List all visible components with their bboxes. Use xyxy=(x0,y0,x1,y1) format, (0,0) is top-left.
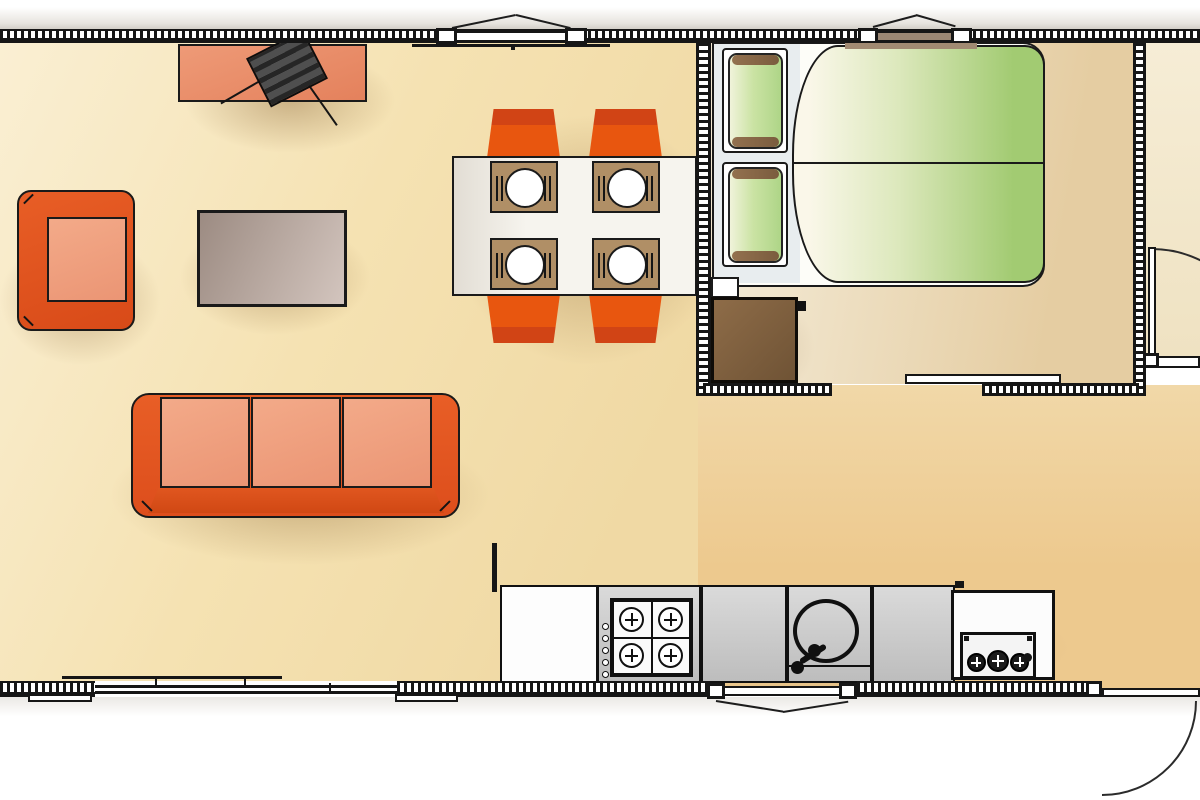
cutlery-icon xyxy=(544,253,552,278)
place-setting xyxy=(490,238,558,290)
window-frame xyxy=(565,28,587,44)
armchair-cushion xyxy=(47,217,127,302)
pillow xyxy=(728,167,783,263)
dining-chair xyxy=(487,294,560,343)
bed-corner-step xyxy=(711,277,739,298)
patio-slider-track xyxy=(95,685,397,688)
window-frame xyxy=(436,28,457,44)
coffee-table xyxy=(197,210,347,307)
stove-knob-icon xyxy=(602,623,609,630)
stove-knob-icon xyxy=(602,647,609,654)
plate-icon xyxy=(505,168,545,208)
cutlery-icon xyxy=(544,176,552,201)
appliance-cabinet xyxy=(951,590,1055,680)
window-frame xyxy=(951,28,972,44)
worktop-right xyxy=(872,585,955,683)
appliance-unit xyxy=(960,632,1036,679)
dining-chair xyxy=(487,109,560,158)
window-frame xyxy=(858,28,878,44)
nightstand xyxy=(711,297,798,383)
entry-door-jamb xyxy=(1086,681,1102,697)
appliance-dial-icon xyxy=(987,650,1009,672)
appliance-dial-icon xyxy=(967,653,986,672)
cutlery-icon xyxy=(598,176,606,201)
place-setting xyxy=(490,161,558,213)
kitchen-cabinet xyxy=(500,585,598,683)
patio-slider-track xyxy=(95,691,397,694)
exterior-wall-bottom-right xyxy=(857,681,1090,697)
bedroom-wall-left xyxy=(696,43,711,396)
entry-door-leaf xyxy=(1102,688,1200,697)
patio-slider-tick xyxy=(244,678,246,686)
sofa-cushion xyxy=(251,397,341,488)
window-sill-dot xyxy=(511,44,515,50)
sofa-front-edge xyxy=(148,488,444,513)
cutlery-icon xyxy=(496,253,504,278)
bathroom-door-leaf xyxy=(1148,247,1156,358)
patio-slider-tick xyxy=(155,678,157,686)
sofa-cushion xyxy=(160,397,250,488)
plate-icon xyxy=(607,168,647,208)
duvet-top xyxy=(792,45,1045,164)
plate-icon xyxy=(505,245,545,285)
bathroom-door-hinge xyxy=(1143,353,1159,368)
cutlery-icon xyxy=(646,176,654,201)
stove-knob-icon xyxy=(602,635,609,642)
bedroom-wall-right xyxy=(1133,43,1146,396)
exterior-shadow-bottom xyxy=(0,697,1200,723)
plate-icon xyxy=(607,245,647,285)
pillow xyxy=(728,53,783,149)
floor-plan xyxy=(0,0,1200,800)
place-setting xyxy=(592,238,660,290)
burner-icon xyxy=(658,607,683,632)
appliance-handle-icon xyxy=(955,581,964,588)
sofa-cushion xyxy=(342,397,432,488)
appliance-corner xyxy=(964,636,969,641)
worktop-left xyxy=(701,585,787,683)
patio-slider-sill xyxy=(395,694,458,702)
dining-chair xyxy=(589,109,662,158)
nightstand-handle-icon xyxy=(797,301,806,311)
dining-table xyxy=(452,156,697,296)
kitchen-window xyxy=(725,686,839,696)
sink-bowl-icon xyxy=(793,599,859,663)
bedroom-window-sill xyxy=(845,43,977,49)
stove-unit xyxy=(597,585,701,683)
faucet-knob-icon xyxy=(791,661,804,674)
living-window xyxy=(457,31,565,42)
burner-icon xyxy=(619,643,644,668)
window-frame xyxy=(839,683,857,699)
kitchen-divider xyxy=(492,543,497,592)
pillow-box xyxy=(722,162,788,267)
window-frame xyxy=(707,683,725,699)
duvet-bottom xyxy=(792,162,1045,283)
place-setting xyxy=(592,161,660,213)
cutlery-icon xyxy=(646,253,654,278)
patio-slider-sill xyxy=(28,694,92,702)
bedroom-wall-bottom-right xyxy=(982,383,1139,396)
bedroom-sliding-door xyxy=(905,374,1061,384)
bedroom-wall-bottom-left xyxy=(703,383,832,396)
appliance-corner xyxy=(1027,636,1032,641)
cutlery-icon xyxy=(496,176,504,201)
cutlery-icon xyxy=(598,253,606,278)
gas-hob xyxy=(610,598,693,677)
dining-chair xyxy=(589,294,662,343)
patio-slider-tick xyxy=(329,683,331,691)
patio-slider-gap xyxy=(95,681,397,696)
burner-icon xyxy=(658,643,683,668)
exterior-shadow-top xyxy=(0,0,1200,29)
appliance-blob xyxy=(1023,653,1032,662)
stove-knob-icon xyxy=(602,659,609,666)
exterior-wall-top xyxy=(0,29,1200,43)
bedroom-window xyxy=(877,31,952,42)
burner-icon xyxy=(619,607,644,632)
patio-slider-panel xyxy=(62,676,282,679)
faucet-knob-icon xyxy=(808,644,821,657)
pillow-box xyxy=(722,48,788,153)
sink-unit xyxy=(787,585,872,683)
stove-knob-icon xyxy=(602,671,609,678)
